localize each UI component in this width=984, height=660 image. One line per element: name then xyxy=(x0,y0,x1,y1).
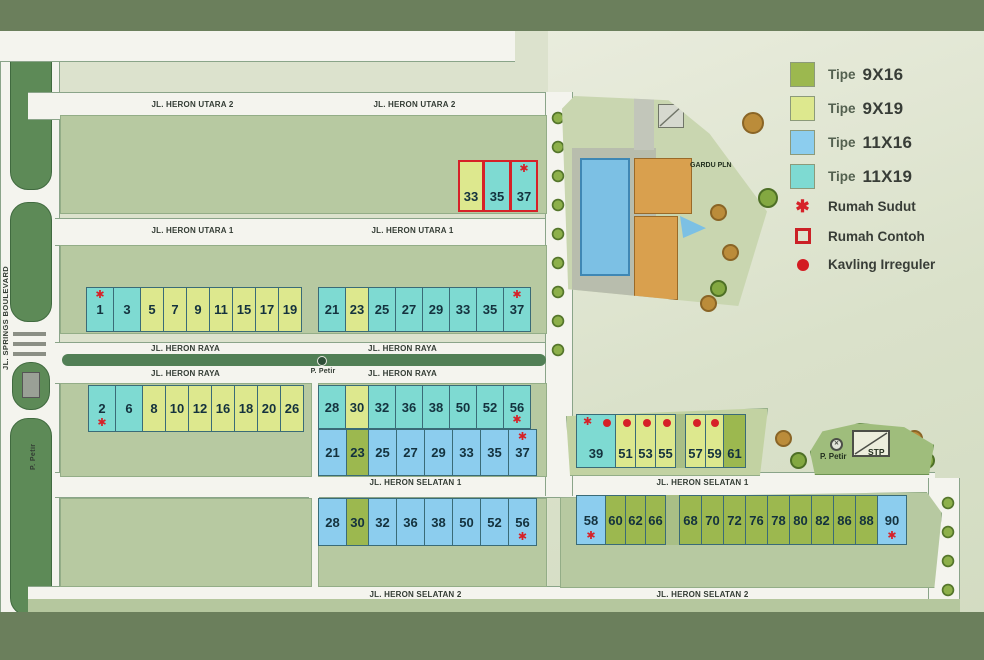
lot-52[interactable]: 52 xyxy=(480,498,509,546)
lot-1[interactable]: 1✱ xyxy=(86,287,114,332)
tree-icon xyxy=(742,112,764,134)
tree-icon xyxy=(710,280,727,297)
lot-number: 25 xyxy=(375,446,389,459)
lot-11[interactable]: 11 xyxy=(209,287,233,332)
street-label-utara-2: JL. HERON UTARA 2 xyxy=(150,100,235,109)
lot-number: 50 xyxy=(456,401,470,414)
lot-28[interactable]: 28 xyxy=(318,385,346,429)
p-petir-symbol xyxy=(317,356,327,366)
p-petir-symbol-right: ✕ xyxy=(830,438,843,451)
p-petir-label-left: P. Petir xyxy=(30,428,37,470)
street-label-raya: JL. HERON RAYA xyxy=(143,369,228,378)
lot-51[interactable]: 51 xyxy=(615,414,636,468)
lot-number: 33 xyxy=(456,303,470,316)
lot-number: 59 xyxy=(707,447,721,467)
entrance-gate-bar xyxy=(13,342,46,346)
lot-number: 32 xyxy=(375,516,389,529)
legend-type-9x16: Tipe 9X16 xyxy=(790,62,984,87)
lot-35[interactable]: 35 xyxy=(476,287,504,332)
rumah-sudut-icon: ✱ xyxy=(583,417,592,428)
swatch-11x19 xyxy=(790,164,815,189)
street-label-boulevard: JL. SPRINGS BOULEVARD xyxy=(1,250,10,370)
lot-row-utara1-right: 2123252729333537✱ xyxy=(318,287,531,332)
lot-61[interactable]: 61 xyxy=(723,414,746,468)
lot-number: 8 xyxy=(150,402,157,415)
tree-icon xyxy=(722,244,739,261)
lot-number: 61 xyxy=(727,447,741,467)
tree-icon xyxy=(775,430,792,447)
lot-10[interactable]: 10 xyxy=(165,385,189,432)
clubhouse-building xyxy=(634,216,678,300)
raya-median xyxy=(62,354,546,366)
lot-number: 1 xyxy=(96,303,103,316)
tree-row xyxy=(62,578,537,593)
lot-6[interactable]: 6 xyxy=(115,385,143,432)
lot-number: 66 xyxy=(648,514,662,527)
street-label-selatan-1: JL. HERON SELATAN 1 xyxy=(368,478,463,487)
lot-33[interactable]: 33 xyxy=(452,429,481,476)
lot-number: 39 xyxy=(589,447,603,467)
lot-number: 57 xyxy=(688,447,702,467)
lot-68[interactable]: 68 xyxy=(679,495,702,545)
lot-82[interactable]: 82 xyxy=(811,495,834,545)
street-label-utara-2: JL. HERON UTARA 2 xyxy=(372,100,457,109)
lot-number: 37 xyxy=(515,446,529,459)
lot-number: 5 xyxy=(148,303,155,316)
legend-marker-label: Rumah Contoh xyxy=(828,229,925,244)
gardu-pln-label: GARDU PLN xyxy=(690,162,732,170)
kavling-irreguler-icon xyxy=(603,419,611,427)
rumah-sudut-icon: ✱ xyxy=(95,290,104,301)
lot-number: 12 xyxy=(193,402,207,415)
rumah-sudut-icon: ✱ xyxy=(586,531,595,542)
lot-number: 80 xyxy=(793,514,807,527)
lot-number: 38 xyxy=(429,401,443,414)
lot-number: 52 xyxy=(483,401,497,414)
lot-36[interactable]: 36 xyxy=(396,498,425,546)
lot-16[interactable]: 16 xyxy=(211,385,235,432)
lot-29[interactable]: 29 xyxy=(424,429,453,476)
stp-label: STP xyxy=(868,447,885,457)
lot-number: 62 xyxy=(628,514,642,527)
lot-59[interactable]: 59 xyxy=(705,414,724,468)
kavling-irreguler-icon xyxy=(711,419,719,427)
lot-number: 20 xyxy=(262,402,276,415)
p-petir-label-center: P. Petir xyxy=(300,368,346,375)
lot-number: 35 xyxy=(490,190,504,210)
lot-80[interactable]: 80 xyxy=(789,495,812,545)
lot-number: 17 xyxy=(260,303,274,316)
legend-tipe-value: 9X19 xyxy=(863,99,904,119)
lot-number: 37 xyxy=(517,190,531,210)
lot-number: 50 xyxy=(459,516,473,529)
lot-20[interactable]: 20 xyxy=(257,385,281,432)
lot-32[interactable]: 32 xyxy=(368,498,397,546)
legend-tipe-label: Tipe xyxy=(828,169,856,184)
tree-icon xyxy=(758,188,778,208)
lot-23[interactable]: 23 xyxy=(346,429,369,476)
tree-icon xyxy=(710,204,727,221)
swatch-9x19 xyxy=(790,96,815,121)
rumah-sudut-icon: ✱ xyxy=(518,432,527,443)
boulevard-median-island xyxy=(10,202,52,322)
tree-column xyxy=(940,495,955,600)
lot-19[interactable]: 19 xyxy=(278,287,302,332)
street-label-selatan-2: JL. HERON SELATAN 2 xyxy=(655,590,750,599)
lot-number: 16 xyxy=(216,402,230,415)
kids-pool xyxy=(680,216,706,238)
kavling-irreguler-icon xyxy=(643,419,651,427)
lot-number: 35 xyxy=(487,446,501,459)
lot-number: 23 xyxy=(350,446,364,459)
lot-37[interactable]: 37✱ xyxy=(508,429,537,476)
lot-number: 60 xyxy=(608,514,622,527)
rumah-sudut-icon: ✱ xyxy=(97,418,106,429)
lot-row-utara1-left: 1✱357911151719 xyxy=(86,287,302,332)
lot-39[interactable]: 39✱ xyxy=(576,414,616,468)
lot-number: 88 xyxy=(859,514,873,527)
lot-8[interactable]: 8 xyxy=(142,385,166,432)
tree-row xyxy=(62,212,532,227)
kavling-irreguler-icon xyxy=(693,419,701,427)
rumah-sudut-icon: ✱ xyxy=(795,198,809,215)
lot-number: 86 xyxy=(837,514,851,527)
lot-27[interactable]: 27 xyxy=(395,287,423,332)
guard-house xyxy=(22,372,40,398)
legend-tipe-value: 11X16 xyxy=(863,133,913,153)
lot-50[interactable]: 50 xyxy=(452,498,481,546)
lot-35[interactable]: 35 xyxy=(480,429,509,476)
lot-76[interactable]: 76 xyxy=(745,495,768,545)
lot-38[interactable]: 38 xyxy=(422,385,450,429)
lot-number: 27 xyxy=(402,303,416,316)
lot-number: 25 xyxy=(375,303,389,316)
lot-number: 18 xyxy=(239,402,253,415)
lot-21[interactable]: 21 xyxy=(318,287,346,332)
street-label-utara-1: JL. HERON UTARA 1 xyxy=(150,226,235,235)
lot-number: 7 xyxy=(171,303,178,316)
rumah-sudut-icon: ✱ xyxy=(518,532,527,543)
lot-32[interactable]: 32 xyxy=(368,385,396,429)
lot-55[interactable]: 55 xyxy=(655,414,676,468)
lot-number: 29 xyxy=(429,303,443,316)
kavling-irreguler-icon xyxy=(623,419,631,427)
lot-row-raya-left: 2✱68101216182026 xyxy=(88,385,304,432)
lot-number: 11 xyxy=(214,303,228,316)
clubhouse-building xyxy=(634,158,692,214)
lot-number: 6 xyxy=(125,402,132,415)
lot-38[interactable]: 38 xyxy=(424,498,453,546)
lot-row-selatan1-mid: 2830323638505256✱ xyxy=(318,498,537,546)
tree-row xyxy=(62,110,507,125)
kavling-irreguler-icon xyxy=(797,259,809,271)
swimming-pool xyxy=(580,158,630,276)
lot-number: 2 xyxy=(98,402,105,415)
lot-21[interactable]: 21 xyxy=(318,429,347,476)
lot-28[interactable]: 28 xyxy=(318,498,347,546)
lot-number: 26 xyxy=(285,402,299,415)
lot-53[interactable]: 53 xyxy=(635,414,656,468)
lot-number: 55 xyxy=(658,447,672,467)
lot-row-raya-right-top: 2830323638505256✱ xyxy=(318,385,531,429)
lot-30[interactable]: 30 xyxy=(345,385,369,429)
tree-column xyxy=(550,110,565,360)
lot-37[interactable]: 37✱ xyxy=(503,287,531,332)
lot-2[interactable]: 2✱ xyxy=(88,385,116,432)
block-selatan-west xyxy=(60,498,312,587)
entrance-gate-bar xyxy=(13,332,46,336)
lot-3[interactable]: 3 xyxy=(113,287,141,332)
lot-number: 37 xyxy=(510,303,524,316)
tree-row xyxy=(540,42,775,57)
street-label-selatan-1: JL. HERON SELATAN 1 xyxy=(655,478,750,487)
p-petir-label-right: P. Petir xyxy=(820,452,847,461)
tree-icon xyxy=(790,452,807,469)
top-band xyxy=(0,0,984,31)
lot-25[interactable]: 25 xyxy=(368,429,397,476)
rumah-sudut-icon: ✱ xyxy=(519,164,528,175)
lot-26[interactable]: 26 xyxy=(280,385,304,432)
legend-tipe-label: Tipe xyxy=(828,101,856,116)
tree-row xyxy=(62,336,532,351)
legend-type-11x19: Tipe 11X19 xyxy=(790,164,984,189)
legend-tipe-value: 11X19 xyxy=(863,167,913,187)
tree-icon xyxy=(700,295,717,312)
site-plan: JL. SPRINGS BOULEVARD P. Petir xyxy=(0,0,984,660)
lot-number: 36 xyxy=(403,516,417,529)
lot-58[interactable]: 58✱ xyxy=(576,495,606,545)
lot-number: 21 xyxy=(325,446,339,459)
lot-number: 78 xyxy=(771,514,785,527)
lot-number: 29 xyxy=(431,446,445,459)
lot-number: 38 xyxy=(431,516,445,529)
legend: Tipe 9X16 Tipe 9X19 Tipe 11X16 Tipe 11X1… xyxy=(790,62,984,285)
lot-7[interactable]: 7 xyxy=(163,287,187,332)
lot-52[interactable]: 52 xyxy=(476,385,504,429)
lot-88[interactable]: 88 xyxy=(855,495,878,545)
rumah-contoh-icon xyxy=(795,228,811,244)
lot-number: 3 xyxy=(123,303,130,316)
legend-type-9x19: Tipe 9X19 xyxy=(790,96,984,121)
rumah-sudut-icon: ✱ xyxy=(512,290,521,301)
street-label-raya: JL. HERON RAYA xyxy=(360,369,445,378)
lot-number: 32 xyxy=(375,401,389,414)
lot-number: 10 xyxy=(170,402,184,415)
legend-tipe-label: Tipe xyxy=(828,67,856,82)
lot-number: 68 xyxy=(683,514,697,527)
legend-rumah-sudut: ✱ Rumah Sudut xyxy=(790,198,984,215)
lot-number: 15 xyxy=(237,303,251,316)
lot-60[interactable]: 60 xyxy=(605,495,626,545)
lot-number: 19 xyxy=(283,303,297,316)
lot-number: 76 xyxy=(749,514,763,527)
lot-number: 21 xyxy=(325,303,339,316)
lot-row-contoh: 333537✱ xyxy=(458,160,538,212)
lot-number: 72 xyxy=(727,514,741,527)
lot-number: 82 xyxy=(815,514,829,527)
lot-number: 23 xyxy=(350,303,364,316)
rumah-sudut-icon: ✱ xyxy=(512,415,521,426)
lot-72[interactable]: 72 xyxy=(723,495,746,545)
swatch-9x16 xyxy=(790,62,815,87)
lot-35[interactable]: 35 xyxy=(483,160,511,212)
legend-kavling-irreguler: Kavling Irreguler xyxy=(790,257,984,272)
lot-number: 33 xyxy=(464,190,478,210)
lot-17[interactable]: 17 xyxy=(255,287,279,332)
lot-23[interactable]: 23 xyxy=(345,287,369,332)
lot-12[interactable]: 12 xyxy=(188,385,212,432)
kavling-irreguler-icon xyxy=(663,419,671,427)
lot-56[interactable]: 56✱ xyxy=(508,498,537,546)
legend-marker-label: Rumah Sudut xyxy=(828,199,916,214)
legend-tipe-label: Tipe xyxy=(828,135,856,150)
lot-25[interactable]: 25 xyxy=(368,287,396,332)
legend-tipe-value: 9X16 xyxy=(863,65,904,85)
lot-9[interactable]: 9 xyxy=(186,287,210,332)
lot-number: 56 xyxy=(510,401,524,414)
lot-row-irregular: 39✱515355575961 xyxy=(576,414,746,468)
lot-number: 70 xyxy=(705,514,719,527)
lot-37[interactable]: 37✱ xyxy=(510,160,538,212)
lot-number: 90 xyxy=(885,514,899,527)
lot-86[interactable]: 86 xyxy=(833,495,856,545)
lot-number: 33 xyxy=(459,446,473,459)
legend-rumah-contoh: Rumah Contoh xyxy=(790,228,984,244)
street-label-utara-1: JL. HERON UTARA 1 xyxy=(370,226,455,235)
bottom-green-strip xyxy=(28,599,960,613)
lot-66[interactable]: 66 xyxy=(645,495,666,545)
entrance-gate-bar xyxy=(13,352,46,356)
lot-36[interactable]: 36 xyxy=(395,385,423,429)
lot-number: 30 xyxy=(350,401,364,414)
rumah-sudut-icon: ✱ xyxy=(887,531,896,542)
legend-marker-label: Kavling Irreguler xyxy=(828,257,935,272)
lot-row-raya-right-bottom: 2123252729333537✱ xyxy=(318,429,537,476)
lot-number: 51 xyxy=(618,447,632,467)
lot-number: 53 xyxy=(638,447,652,467)
swatch-11x16 xyxy=(790,130,815,155)
street-label-selatan-2: JL. HERON SELATAN 2 xyxy=(368,590,463,599)
street-label-raya: JL. HERON RAYA xyxy=(143,344,228,353)
lot-number: 56 xyxy=(515,516,529,529)
lot-number: 58 xyxy=(584,514,598,527)
lot-number: 28 xyxy=(325,516,339,529)
lot-number: 36 xyxy=(402,401,416,414)
bottom-band xyxy=(0,612,984,660)
lot-29[interactable]: 29 xyxy=(422,287,450,332)
lot-50[interactable]: 50 xyxy=(449,385,477,429)
tree-row xyxy=(22,36,502,51)
lot-27[interactable]: 27 xyxy=(396,429,425,476)
lot-57[interactable]: 57 xyxy=(685,414,706,468)
lot-number: 30 xyxy=(350,516,364,529)
lot-90[interactable]: 90✱ xyxy=(877,495,907,545)
lot-number: 52 xyxy=(487,516,501,529)
lot-30[interactable]: 30 xyxy=(346,498,369,546)
lot-18[interactable]: 18 xyxy=(234,385,258,432)
lot-15[interactable]: 15 xyxy=(232,287,256,332)
lot-33[interactable]: 33 xyxy=(449,287,477,332)
planting-strip xyxy=(666,495,680,545)
lot-56[interactable]: 56✱ xyxy=(503,385,531,429)
lot-78[interactable]: 78 xyxy=(767,495,790,545)
lot-number: 9 xyxy=(194,303,201,316)
lot-number: 27 xyxy=(403,446,417,459)
lot-5[interactable]: 5 xyxy=(140,287,164,332)
lot-70[interactable]: 70 xyxy=(701,495,724,545)
lot-row-selatan1-right: 58✱60626668707276788082868890✱ xyxy=(576,495,907,545)
street-label-raya: JL. HERON RAYA xyxy=(360,344,445,353)
lot-number: 35 xyxy=(483,303,497,316)
legend-type-11x16: Tipe 11X16 xyxy=(790,130,984,155)
lot-33[interactable]: 33 xyxy=(458,160,484,212)
lot-number: 28 xyxy=(325,401,339,414)
tree-row xyxy=(62,238,532,253)
lot-62[interactable]: 62 xyxy=(625,495,646,545)
